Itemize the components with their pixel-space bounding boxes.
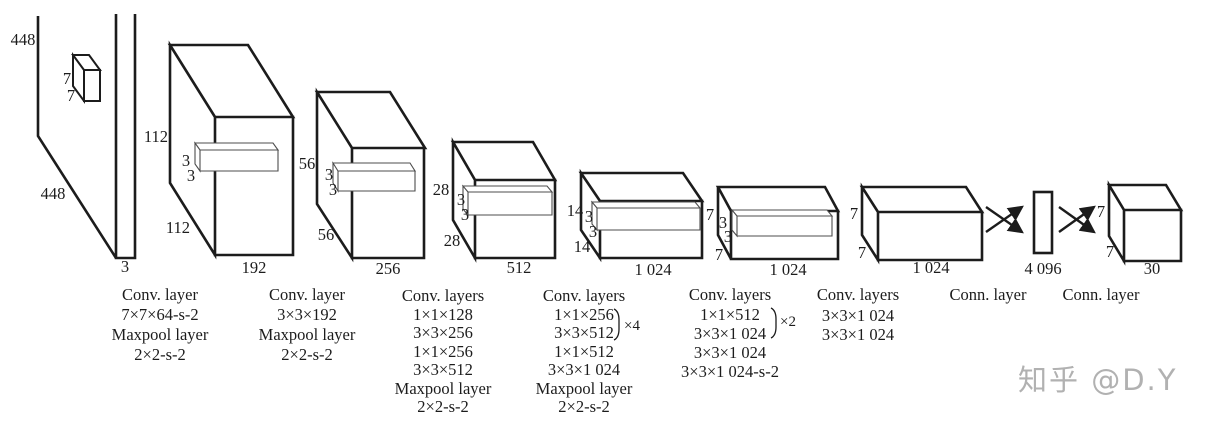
- box6-front-label: 1 024: [912, 258, 949, 277]
- layer-label-line: 3×3×512: [554, 323, 614, 342]
- box6-side-label: 7: [850, 204, 858, 223]
- box3-depth-label: 28: [444, 231, 461, 250]
- layer-label-line: 1×1×512: [554, 342, 614, 361]
- repeat-count-label: ×2: [780, 314, 796, 330]
- box3-kernel-w: 3: [461, 205, 469, 224]
- layer-label-column-4: Conv. layers 1×1×256 3×3×512 1×1×512 3×3…: [536, 286, 641, 416]
- layer-label-line: 3×3×512: [413, 360, 473, 379]
- network-diagram-canvas: 448 448 3 7 7 112 112 192 3 3 56 56 256 …: [0, 0, 1222, 429]
- layer-label-line: 3×3×1 024: [694, 324, 766, 343]
- layer-label-line: Maxpool layer: [536, 379, 633, 398]
- layer-label-column-3: Conv. layers 1×1×128 3×3×256 1×1×256 3×3…: [395, 286, 492, 416]
- layer-label-column-7: Conn. layer: [950, 285, 1027, 304]
- layer-label-line: Conv. layer: [122, 285, 198, 304]
- layer-label-line: 3×3×256: [413, 323, 473, 342]
- repeat-brace: [614, 309, 619, 340]
- box5-front-label: 1 024: [769, 260, 806, 279]
- input-channels-label: 3: [121, 257, 129, 276]
- input-width-label: 448: [41, 184, 66, 203]
- kernel-slab-outline: [592, 202, 700, 230]
- layer-label-line: 2×2-s-2: [558, 397, 609, 416]
- layer-label-line: 3×3×1 024-s-2: [681, 362, 779, 381]
- layer-label-line: 2×2-s-2: [134, 345, 185, 364]
- conv-box-1: 112 112 192 3 3: [144, 45, 293, 277]
- box1-kernel-w: 3: [187, 166, 195, 185]
- layer-label-line: 3×3×1 024: [694, 343, 766, 362]
- watermark-text: 知乎 @D.Y: [1018, 363, 1177, 397]
- kernel-slab-outline: [333, 163, 415, 191]
- kernel-slab-outline: [732, 210, 832, 236]
- layer-label-line: 1×1×256: [413, 342, 473, 361]
- box2-side-label: 56: [299, 154, 316, 173]
- output-side-label: 7: [1097, 202, 1105, 221]
- repeat-count-label: ×4: [624, 318, 640, 334]
- input-plane-outline: [38, 14, 135, 258]
- box1-side-label: 112: [144, 127, 168, 146]
- box2-kernel-w: 3: [329, 180, 337, 199]
- box4-kernel-w: 3: [589, 222, 597, 241]
- input-height-label: 448: [11, 30, 36, 49]
- repeat-brace: [771, 308, 776, 338]
- kernel-cuboid-outline: [73, 55, 100, 101]
- layer-label-line: 2×2-s-2: [281, 345, 332, 364]
- box6-depth-label: 7: [858, 243, 866, 262]
- layer-label-line: Conn. layer: [950, 285, 1027, 304]
- fc-units-label: 4 096: [1024, 259, 1061, 278]
- output-depth-label: 7: [1106, 242, 1114, 261]
- box1-depth-label: 112: [166, 218, 190, 237]
- box3-side-label: 28: [433, 180, 450, 199]
- layer-label-line: Conv. layer: [269, 285, 345, 304]
- layer-label-line: Maxpool layer: [112, 325, 209, 344]
- output-tensor-cube: 7 7 30: [1097, 185, 1181, 278]
- box4-depth-label: 14: [574, 237, 591, 256]
- fc-layer: 4 096: [1024, 192, 1061, 278]
- conv-box-5: 7 7 1 024 3 3: [706, 187, 838, 279]
- box2-front-label: 256: [376, 259, 401, 278]
- layer-label-column-8: Conn. layer: [1063, 285, 1140, 304]
- layer-label-line: Maxpool layer: [395, 379, 492, 398]
- layer-label-line: Conv. layers: [543, 286, 625, 305]
- layer-label-column-6: Conv. layers 3×3×1 024 3×3×1 024: [817, 285, 899, 344]
- layer-label-line: 1×1×256: [554, 305, 614, 324]
- layer-label-line: Conn. layer: [1063, 285, 1140, 304]
- fc-connection-arrows-2: [1059, 207, 1094, 232]
- layer-label-line: 2×2-s-2: [417, 397, 468, 416]
- kernel-w-label: 7: [67, 86, 75, 105]
- input-kernel-7x7: 7 7: [63, 55, 100, 105]
- architecture-diagram: 448 448 3 7 7 112 112 192 3 3 56 56 256 …: [0, 0, 1222, 429]
- layer-label-line: 1×1×512: [700, 305, 760, 324]
- layer-label-line: Maxpool layer: [259, 325, 356, 344]
- box4-side-label: 14: [567, 201, 584, 220]
- layer-label-line: 3×3×1 024: [548, 360, 620, 379]
- conv-box-6: 7 7 1 024: [850, 187, 982, 277]
- layer-label-column-1: Conv. layer 7×7×64-s-2 Maxpool layer 2×2…: [112, 285, 209, 364]
- box5-side-label: 7: [706, 205, 714, 224]
- box5-depth-label: 7: [715, 245, 723, 264]
- cuboid-outline: [862, 187, 982, 260]
- box3-front-label: 512: [507, 258, 532, 277]
- layer-label-line: 3×3×1 024: [822, 306, 894, 325]
- cuboid-outline: [1109, 185, 1181, 261]
- conv-box-2: 56 56 256 3 3: [299, 92, 425, 278]
- conv-box-3: 28 28 512 3 3: [433, 142, 555, 277]
- kernel-slab-outline: [195, 143, 278, 171]
- kernel-slab-outline: [463, 186, 552, 215]
- fc-connection-arrows-1: [986, 207, 1022, 232]
- conv-box-4: 14 14 1 024 3 3: [567, 173, 702, 279]
- box4-front-label: 1 024: [634, 260, 671, 279]
- layer-label-column-2: Conv. layer 3×3×192 Maxpool layer 2×2-s-…: [259, 285, 356, 364]
- layer-label-line: Conv. layers: [817, 285, 899, 304]
- box2-depth-label: 56: [318, 225, 335, 244]
- layer-label-line: 3×3×192: [277, 305, 337, 324]
- box5-kernel-w: 3: [724, 227, 732, 246]
- fc-layer-rect: [1034, 192, 1052, 253]
- layer-label-line: Conv. layers: [402, 286, 484, 305]
- output-front-label: 30: [1144, 259, 1161, 278]
- layer-label-line: 3×3×1 024: [822, 325, 894, 344]
- layer-label-column-5: Conv. layers 1×1×512 3×3×1 024 3×3×1 024…: [681, 285, 796, 381]
- layer-label-line: Conv. layers: [689, 285, 771, 304]
- box1-front-label: 192: [242, 258, 267, 277]
- layer-label-line: 7×7×64-s-2: [121, 305, 198, 324]
- layer-label-line: 1×1×128: [413, 305, 473, 324]
